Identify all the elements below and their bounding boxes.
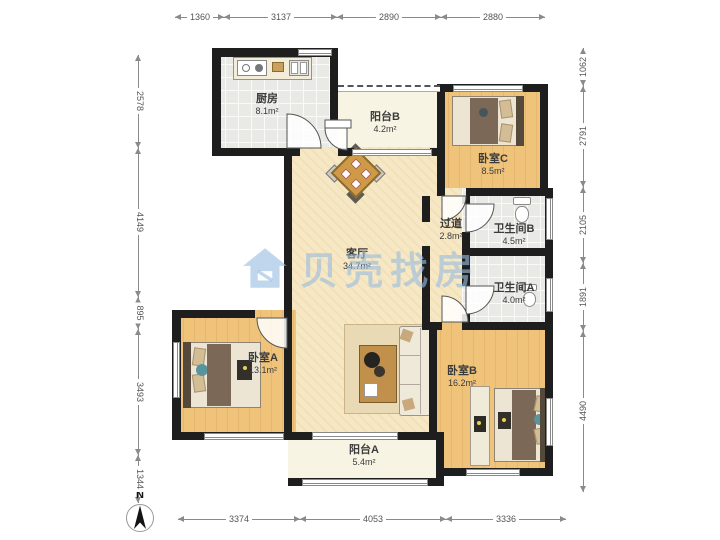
window [352,149,432,156]
dimension-value: 4053 [360,515,386,525]
toilet-icon [513,197,531,205]
compass-icon [124,502,156,534]
dimension-value: 2105 [579,212,589,238]
room-label-bathroom-a: 卫生间A4.0m² [494,281,535,307]
pillow-icon [192,373,206,392]
dimension-value: 1062 [579,54,589,80]
burner-icon [255,64,263,72]
dimension-value: 3374 [226,515,252,525]
wall [398,432,436,440]
wall [540,84,548,196]
dimension-value: 4490 [579,398,589,424]
wall [212,48,221,156]
dimension-value: 4149 [134,209,144,235]
window [546,278,553,312]
wall [466,188,548,196]
window [204,433,284,440]
sink-basin-icon [291,62,298,74]
tray-icon [364,383,378,397]
dimension-value: 1891 [579,284,589,310]
dimension-value: 1344 [134,466,144,492]
decor-bowl-icon [374,366,385,377]
dimension-value: 2791 [579,123,589,149]
pillow-icon [499,123,513,142]
headboard [183,342,191,408]
balcony-open-edge [338,85,440,92]
beike-house-icon [240,243,290,293]
floor-plan-canvas: 厨房8.1m² 阳台B4.2m² 卧室C8.5m² 过道2.8m² 卫生间B4.… [0,0,720,540]
room-label-balcony-a: 阳台A5.4m² [349,443,379,469]
sofa-back-line [420,328,421,414]
wall [422,246,430,330]
window [173,342,180,398]
room-label-living: 客厅34.7m² [343,247,371,273]
dimension-value: 2880 [480,13,506,23]
bed-blanket [512,390,536,460]
wall [284,148,292,440]
wall [288,432,312,440]
cutting-board-icon [272,62,284,72]
room-label-bedroom-b: 卧室B16.2m² [447,364,477,390]
wall [436,432,444,486]
wall [468,322,553,330]
dimension-value: 3137 [268,13,294,23]
dimension-value: 3336 [493,515,519,525]
dimension-value: 2578 [134,88,144,114]
compass-north-indicator: N [123,490,157,539]
window [466,469,520,476]
dimension-value: 2890 [376,13,402,23]
wall [462,248,553,256]
bed-tray-dot [243,366,247,370]
wall [429,322,437,440]
window [302,479,428,486]
sink-basin-icon [300,62,307,74]
wall [437,188,442,196]
room-label-balcony-b: 阳台B4.2m² [370,110,400,136]
bed-blanket [470,98,498,144]
wall [437,92,445,196]
bed-tray-dot [502,418,506,422]
wall [330,48,338,120]
burner-icon [242,64,250,72]
dimension-value: 1360 [187,13,213,23]
headboard [516,96,524,146]
room-label-hallway: 过道2.8m² [439,217,462,243]
sofa-cushion-line [400,384,420,385]
dimension-value: 895 [134,302,144,323]
window [453,85,523,92]
wall [462,196,470,204]
dimension-value: 3493 [134,379,144,405]
wardrobe-dot [477,421,481,425]
wall [462,256,470,286]
sliding-door [312,432,398,440]
window [546,198,553,240]
room-label-bedroom-c: 卧室C8.5m² [478,152,508,178]
room-label-kitchen: 厨房8.1m² [255,92,278,118]
toilet-icon [515,206,529,223]
bed-blanket [207,344,231,406]
wall [172,310,255,318]
sofa-cushion-line [400,355,420,356]
bed-cushion [479,108,488,117]
pillow-icon [499,99,513,118]
room-label-bedroom-a: 卧室A13.1m² [248,351,278,377]
window [546,398,553,446]
wall [422,196,430,222]
room-label-bathroom-b: 卫生间B4.5m² [494,222,535,248]
window [298,49,332,56]
